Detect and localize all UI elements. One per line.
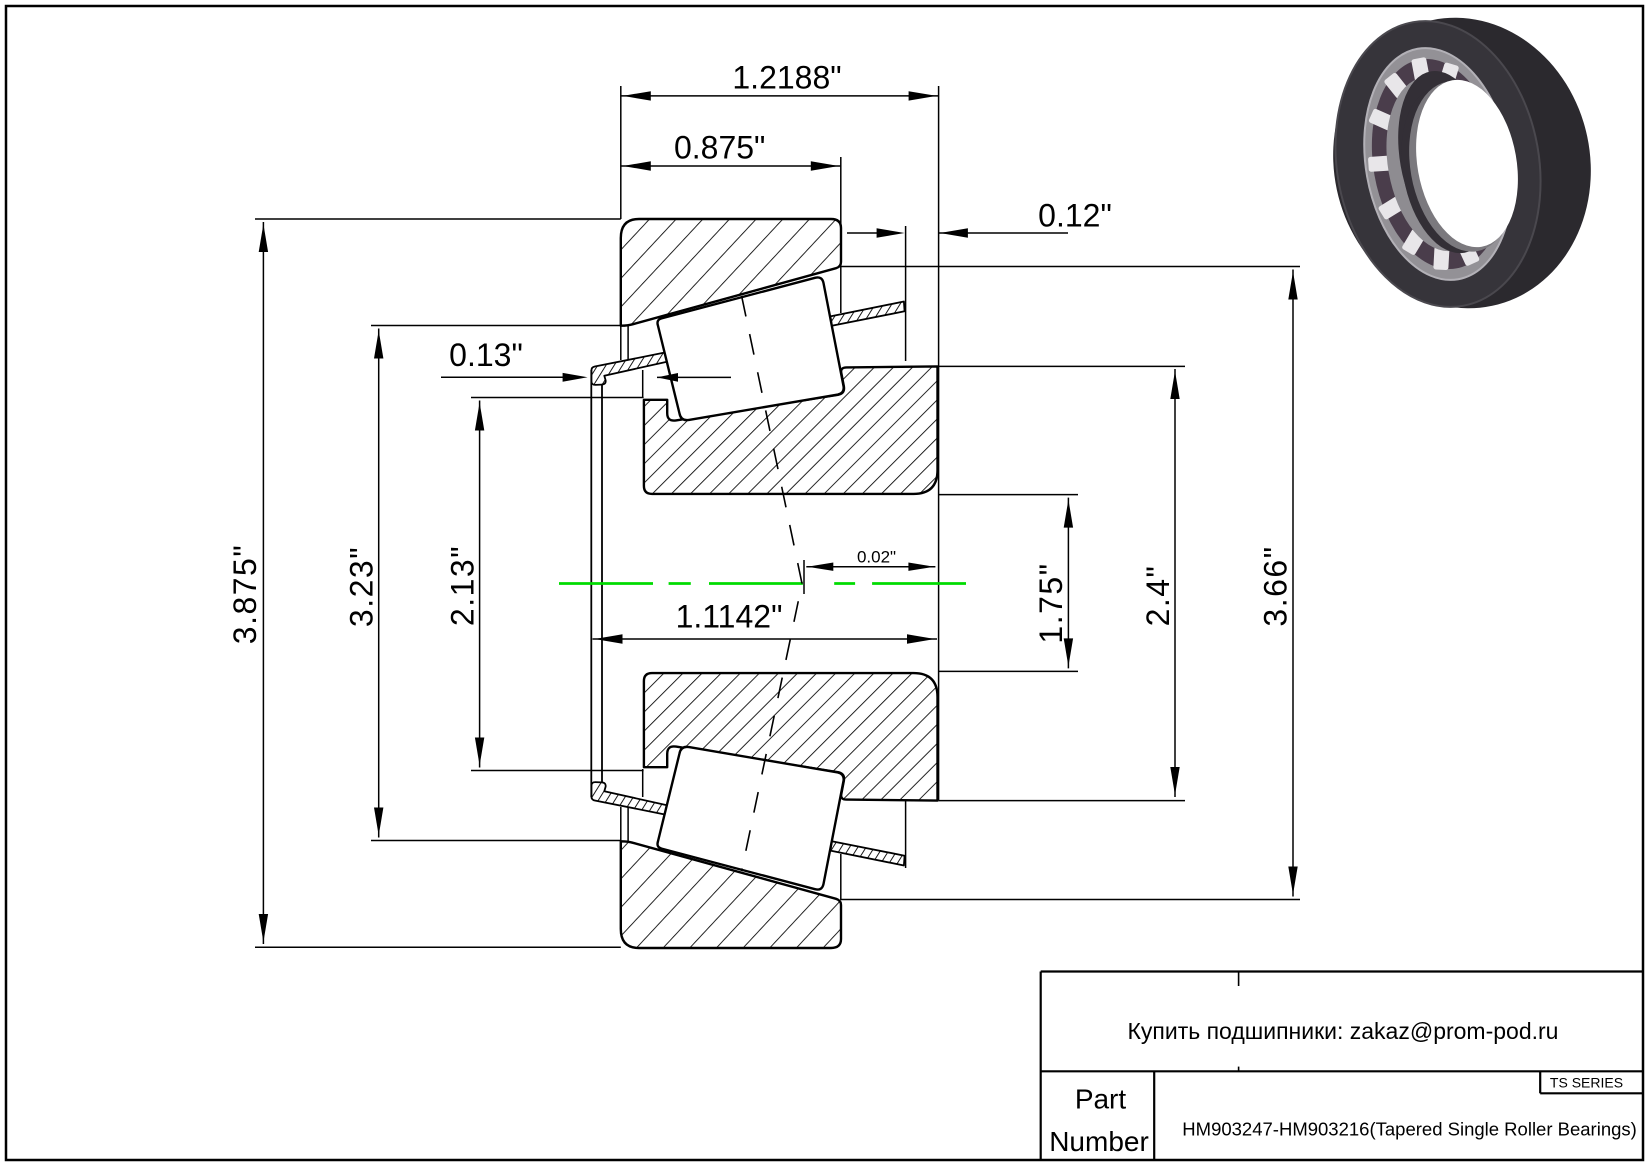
svg-text:Купить подшипники: zakaz@prom-: Купить подшипники: zakaz@prom-pod.ru bbox=[1128, 1018, 1559, 1044]
svg-text:0.02": 0.02" bbox=[857, 548, 896, 567]
svg-text:Number: Number bbox=[1049, 1126, 1149, 1157]
svg-text:0.13": 0.13" bbox=[449, 337, 523, 373]
svg-text:HM903247-HM903216(Tapered Sing: HM903247-HM903216(Tapered Single Roller … bbox=[1182, 1119, 1637, 1140]
svg-text:1.75": 1.75" bbox=[1033, 562, 1069, 643]
svg-text:2.4": 2.4" bbox=[1140, 565, 1176, 627]
svg-text:3.875": 3.875" bbox=[227, 544, 263, 644]
svg-text:1.1142": 1.1142" bbox=[676, 599, 783, 635]
svg-text:3.23": 3.23" bbox=[344, 546, 380, 627]
svg-text:Part: Part bbox=[1075, 1083, 1127, 1114]
svg-text:1.2188": 1.2188" bbox=[732, 59, 841, 95]
svg-text:2.13": 2.13" bbox=[445, 545, 481, 626]
svg-text:3.66": 3.66" bbox=[1258, 545, 1294, 626]
svg-text:TS SERIES: TS SERIES bbox=[1550, 1075, 1623, 1091]
svg-text:0.12": 0.12" bbox=[1038, 198, 1112, 234]
svg-text:0.875": 0.875" bbox=[674, 130, 765, 166]
